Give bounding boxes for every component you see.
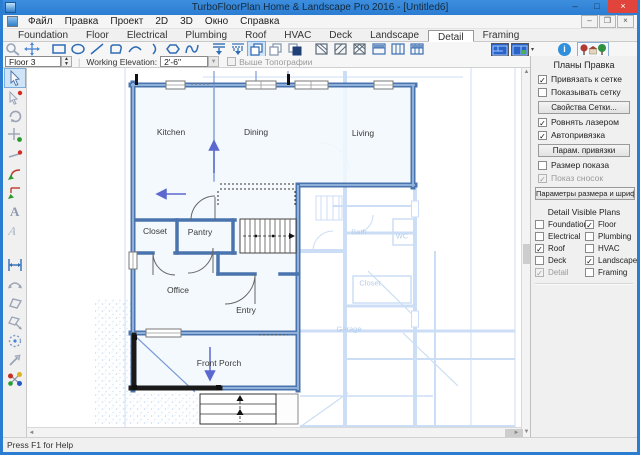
plan-tab-bar: Foundation Floor Electrical Plumbing Roo… bbox=[3, 29, 637, 42]
split-horizontal-tool-icon[interactable] bbox=[370, 42, 387, 56]
mdi-minimize-button[interactable]: – bbox=[581, 15, 598, 28]
app-window: TurboFloorPlan Home & Landscape Pro 2016… bbox=[0, 0, 640, 455]
vp-roof[interactable]: Roof bbox=[535, 243, 585, 253]
elevation-dropdown-icon[interactable]: ▼ bbox=[208, 56, 219, 67]
floor-select-value: Floor 3 bbox=[9, 57, 35, 67]
menu-help[interactable]: Справка bbox=[234, 16, 285, 27]
porch-steps bbox=[200, 394, 298, 424]
marker-display-label: Показ сносок bbox=[551, 173, 603, 183]
closed-curve-tool-icon[interactable] bbox=[107, 42, 124, 56]
faint-label-garage: Garage bbox=[336, 325, 361, 334]
room-label-office: Office bbox=[167, 285, 189, 295]
tab-electrical[interactable]: Electrical bbox=[118, 29, 177, 41]
snap-to-grid-label: Привязать к сетке bbox=[551, 74, 622, 84]
floor-spinner[interactable]: ▲▼ bbox=[61, 56, 72, 67]
room-label-kitchen: Kitchen bbox=[157, 127, 185, 137]
dimension-font-settings-button[interactable]: Параметры размера и шрифта... bbox=[535, 187, 635, 200]
site-view-button[interactable] bbox=[577, 42, 609, 57]
mdi-close-button[interactable]: × bbox=[617, 15, 634, 28]
drawing-canvas[interactable]: Kitchen Dining Living Closet Pantry Offi… bbox=[27, 68, 521, 427]
autosnap-row[interactable]: Автопривязка bbox=[538, 130, 633, 140]
snap-point-tool-icon[interactable] bbox=[5, 126, 25, 144]
vp-foundation[interactable]: Foundation bbox=[535, 219, 585, 229]
zoom-tool-icon[interactable] bbox=[4, 42, 21, 56]
spray-tool-icon[interactable] bbox=[5, 332, 25, 350]
polygon-tool-icon[interactable] bbox=[164, 42, 181, 56]
align-label: Ровнять лазером bbox=[551, 117, 619, 127]
vp-plumbing[interactable]: Plumbing bbox=[585, 231, 634, 241]
room-label-living: Living bbox=[352, 128, 374, 138]
spline-tool-icon[interactable] bbox=[183, 42, 200, 56]
curved-dimension-tool-icon[interactable] bbox=[5, 275, 25, 293]
rectangle-tool-icon[interactable] bbox=[50, 42, 67, 56]
vp-landscape-checkbox[interactable] bbox=[585, 256, 594, 265]
hatch-lines-tool-icon[interactable] bbox=[332, 42, 349, 56]
svg-text:A: A bbox=[7, 224, 18, 238]
tab-deck[interactable]: Deck bbox=[320, 29, 361, 41]
visible-plans-grid: Foundation Floor Electrical Plumbing Roo… bbox=[535, 219, 633, 277]
menu-2d[interactable]: 2D bbox=[149, 16, 174, 27]
menu-project[interactable]: Проект bbox=[104, 16, 149, 27]
vp-floor-checkbox[interactable] bbox=[585, 220, 594, 229]
fillet-tool-icon[interactable] bbox=[5, 164, 25, 182]
hatch-cross-tool-icon[interactable] bbox=[351, 42, 368, 56]
grid-table-tool-icon[interactable] bbox=[408, 42, 425, 56]
ellipse-tool-icon[interactable] bbox=[69, 42, 86, 56]
floor-plan-drawing bbox=[27, 68, 521, 427]
floor-select[interactable]: Floor 3 bbox=[5, 56, 61, 67]
tab-hvac[interactable]: HVAC bbox=[275, 29, 320, 41]
status-text: Press F1 for Help bbox=[7, 440, 73, 450]
snap-settings-button[interactable]: Парам. привязки bbox=[538, 144, 630, 157]
text-tool-icon[interactable]: A bbox=[5, 202, 25, 220]
plan-thumbnail-2-icon[interactable] bbox=[511, 43, 529, 56]
menu-file[interactable]: Файл bbox=[22, 16, 59, 27]
vp-hvac-checkbox[interactable] bbox=[585, 244, 594, 253]
room-label-front-porch: Front Porch bbox=[197, 358, 241, 368]
line-point-tool-icon[interactable] bbox=[5, 145, 25, 163]
stairs bbox=[240, 219, 296, 253]
connection-hub-tool-icon[interactable] bbox=[5, 370, 25, 388]
align-checkbox[interactable] bbox=[538, 118, 547, 127]
vp-deck[interactable]: Deck bbox=[535, 255, 585, 265]
vp-framing[interactable]: Framing bbox=[585, 267, 634, 277]
working-elevation-label: Working Elevation: bbox=[86, 57, 157, 67]
marker-display-checkbox bbox=[538, 174, 547, 183]
select-node-tool-icon[interactable] bbox=[5, 88, 25, 106]
show-grid-checkbox[interactable] bbox=[538, 88, 547, 97]
split-vertical-tool-icon[interactable] bbox=[389, 42, 406, 56]
visible-plans-title: Detail Visible Plans bbox=[535, 207, 633, 217]
vertical-scrollbar[interactable]: ▲ ▼ bbox=[521, 68, 530, 437]
dimension-tool-icon[interactable] bbox=[210, 42, 227, 56]
paste-tool-icon[interactable] bbox=[286, 42, 303, 56]
faint-label-closet: Closet bbox=[359, 279, 380, 288]
tab-roof[interactable]: Roof bbox=[236, 29, 275, 41]
separator: | bbox=[78, 57, 80, 67]
text-italic-tool-icon[interactable]: A bbox=[5, 221, 25, 239]
svg-text:A: A bbox=[10, 204, 20, 219]
copy-tool-icon[interactable] bbox=[267, 42, 284, 56]
document-icon bbox=[7, 16, 18, 27]
polygon-edit-tool-icon[interactable] bbox=[5, 313, 25, 331]
autosnap-label: Автопривязка bbox=[551, 130, 605, 140]
room-label-dining: Dining bbox=[244, 127, 268, 137]
menu-edit[interactable]: Правка bbox=[59, 16, 105, 27]
vp-deck-checkbox[interactable] bbox=[535, 256, 544, 265]
plans-edit-panel: Планы Правка Привязать к сетке Показыват… bbox=[530, 56, 637, 437]
dimension-display-checkbox[interactable] bbox=[538, 161, 547, 170]
vp-electrical-checkbox[interactable] bbox=[535, 232, 544, 241]
vp-detail: Detail bbox=[535, 267, 585, 277]
snap-to-grid-checkbox[interactable] bbox=[538, 75, 547, 84]
show-grid-label: Показывать сетку bbox=[551, 87, 621, 97]
vp-framing-checkbox[interactable] bbox=[585, 268, 594, 277]
close-button[interactable]: × bbox=[608, 0, 638, 13]
mdi-restore-button[interactable]: ❒ bbox=[599, 15, 616, 28]
tab-foundation[interactable]: Foundation bbox=[9, 29, 77, 41]
vp-plumbing-checkbox[interactable] bbox=[585, 232, 594, 241]
vp-hvac[interactable]: HVAC bbox=[585, 243, 634, 253]
vp-roof-checkbox[interactable] bbox=[535, 244, 544, 253]
grid-properties-button[interactable]: Свойства Сетки... bbox=[538, 101, 630, 114]
faint-label-bath: Bath bbox=[351, 228, 366, 237]
room-label-closet: Closet bbox=[143, 226, 167, 236]
working-elevation-value: 2'-6" bbox=[164, 57, 181, 67]
arc-tool-icon[interactable] bbox=[126, 42, 143, 56]
minimize-button[interactable]: – bbox=[564, 0, 586, 13]
curve-arc-tool-icon[interactable] bbox=[145, 42, 162, 56]
horizontal-scrollbar[interactable]: ◄ ► bbox=[27, 427, 521, 437]
vp-floor[interactable]: Floor bbox=[585, 219, 634, 229]
title-bar: TurboFloorPlan Home & Landscape Pro 2016… bbox=[0, 0, 640, 15]
show-grid-row[interactable]: Показывать сетку bbox=[538, 87, 633, 97]
tab-plumbing[interactable]: Plumbing bbox=[176, 29, 236, 41]
plan-thumbnail-1-icon[interactable] bbox=[491, 43, 509, 56]
status-bar: Press F1 for Help bbox=[3, 437, 637, 452]
main-area: A A bbox=[3, 68, 637, 437]
tab-framing[interactable]: Framing bbox=[474, 29, 529, 41]
pan-tool-icon[interactable] bbox=[23, 42, 40, 56]
rotate-tool-icon[interactable] bbox=[5, 107, 25, 125]
dimension-auto-tool-icon[interactable] bbox=[229, 42, 246, 56]
vp-landscape[interactable]: Landscape bbox=[585, 255, 634, 265]
duplicate-tool-icon[interactable] bbox=[248, 42, 265, 56]
pointer-ne-tool-icon[interactable] bbox=[5, 351, 25, 369]
info-button[interactable]: i bbox=[558, 43, 571, 56]
autosnap-checkbox[interactable] bbox=[538, 131, 547, 140]
menu-window[interactable]: Окно bbox=[199, 16, 234, 27]
chamfer-tool-icon[interactable] bbox=[5, 183, 25, 201]
tab-detail[interactable]: Detail bbox=[428, 30, 474, 42]
maximize-button[interactable]: □ bbox=[586, 0, 608, 13]
tab-landscape[interactable]: Landscape bbox=[361, 29, 428, 41]
menu-3d[interactable]: 3D bbox=[174, 16, 199, 27]
hatch-diagonal-tool-icon[interactable] bbox=[313, 42, 330, 56]
working-elevation-input[interactable]: 2'-6" bbox=[160, 56, 208, 67]
window-title: TurboFloorPlan Home & Landscape Pro 2016… bbox=[0, 2, 640, 13]
thumbnail-dropdown-icon[interactable]: ▾ bbox=[531, 46, 534, 53]
vp-electrical[interactable]: Electrical bbox=[535, 231, 585, 241]
above-topo-checkbox bbox=[227, 57, 236, 66]
line-tool-icon[interactable] bbox=[88, 42, 105, 56]
faint-label-wc: WC bbox=[396, 232, 409, 241]
dimension-display-label: Размер показа bbox=[551, 160, 609, 170]
tool-palette: A A bbox=[3, 68, 27, 437]
snap-to-grid-row[interactable]: Привязать к сетке bbox=[538, 74, 633, 84]
tab-floor[interactable]: Floor bbox=[77, 29, 118, 41]
panel-separator bbox=[535, 283, 633, 285]
marker-display-row: Показ сносок bbox=[538, 173, 633, 183]
panel-title: Планы Правка bbox=[535, 60, 633, 70]
polygon-tool-icon[interactable] bbox=[5, 294, 25, 312]
room-label-pantry: Pantry bbox=[188, 227, 213, 237]
menu-bar: Файл Правка Проект 2D 3D Окно Справка – … bbox=[3, 15, 637, 29]
align-row[interactable]: Ровнять лазером bbox=[538, 117, 633, 127]
floor-bar: Floor 3 ▲▼ | Working Elevation: 2'-6" ▼ … bbox=[3, 56, 530, 68]
select-tool-icon[interactable] bbox=[5, 69, 25, 87]
dimension-tool-icon[interactable] bbox=[5, 256, 25, 274]
above-topo-label: Выше Топографии bbox=[239, 57, 312, 67]
vp-detail-checkbox bbox=[535, 268, 544, 277]
dimension-display-row[interactable]: Размер показа bbox=[538, 160, 633, 170]
vp-foundation-checkbox[interactable] bbox=[535, 220, 544, 229]
vertical-scroll-thumb[interactable] bbox=[523, 244, 530, 264]
room-label-entry: Entry bbox=[236, 305, 256, 315]
toolbar: ▾ i bbox=[3, 42, 637, 56]
